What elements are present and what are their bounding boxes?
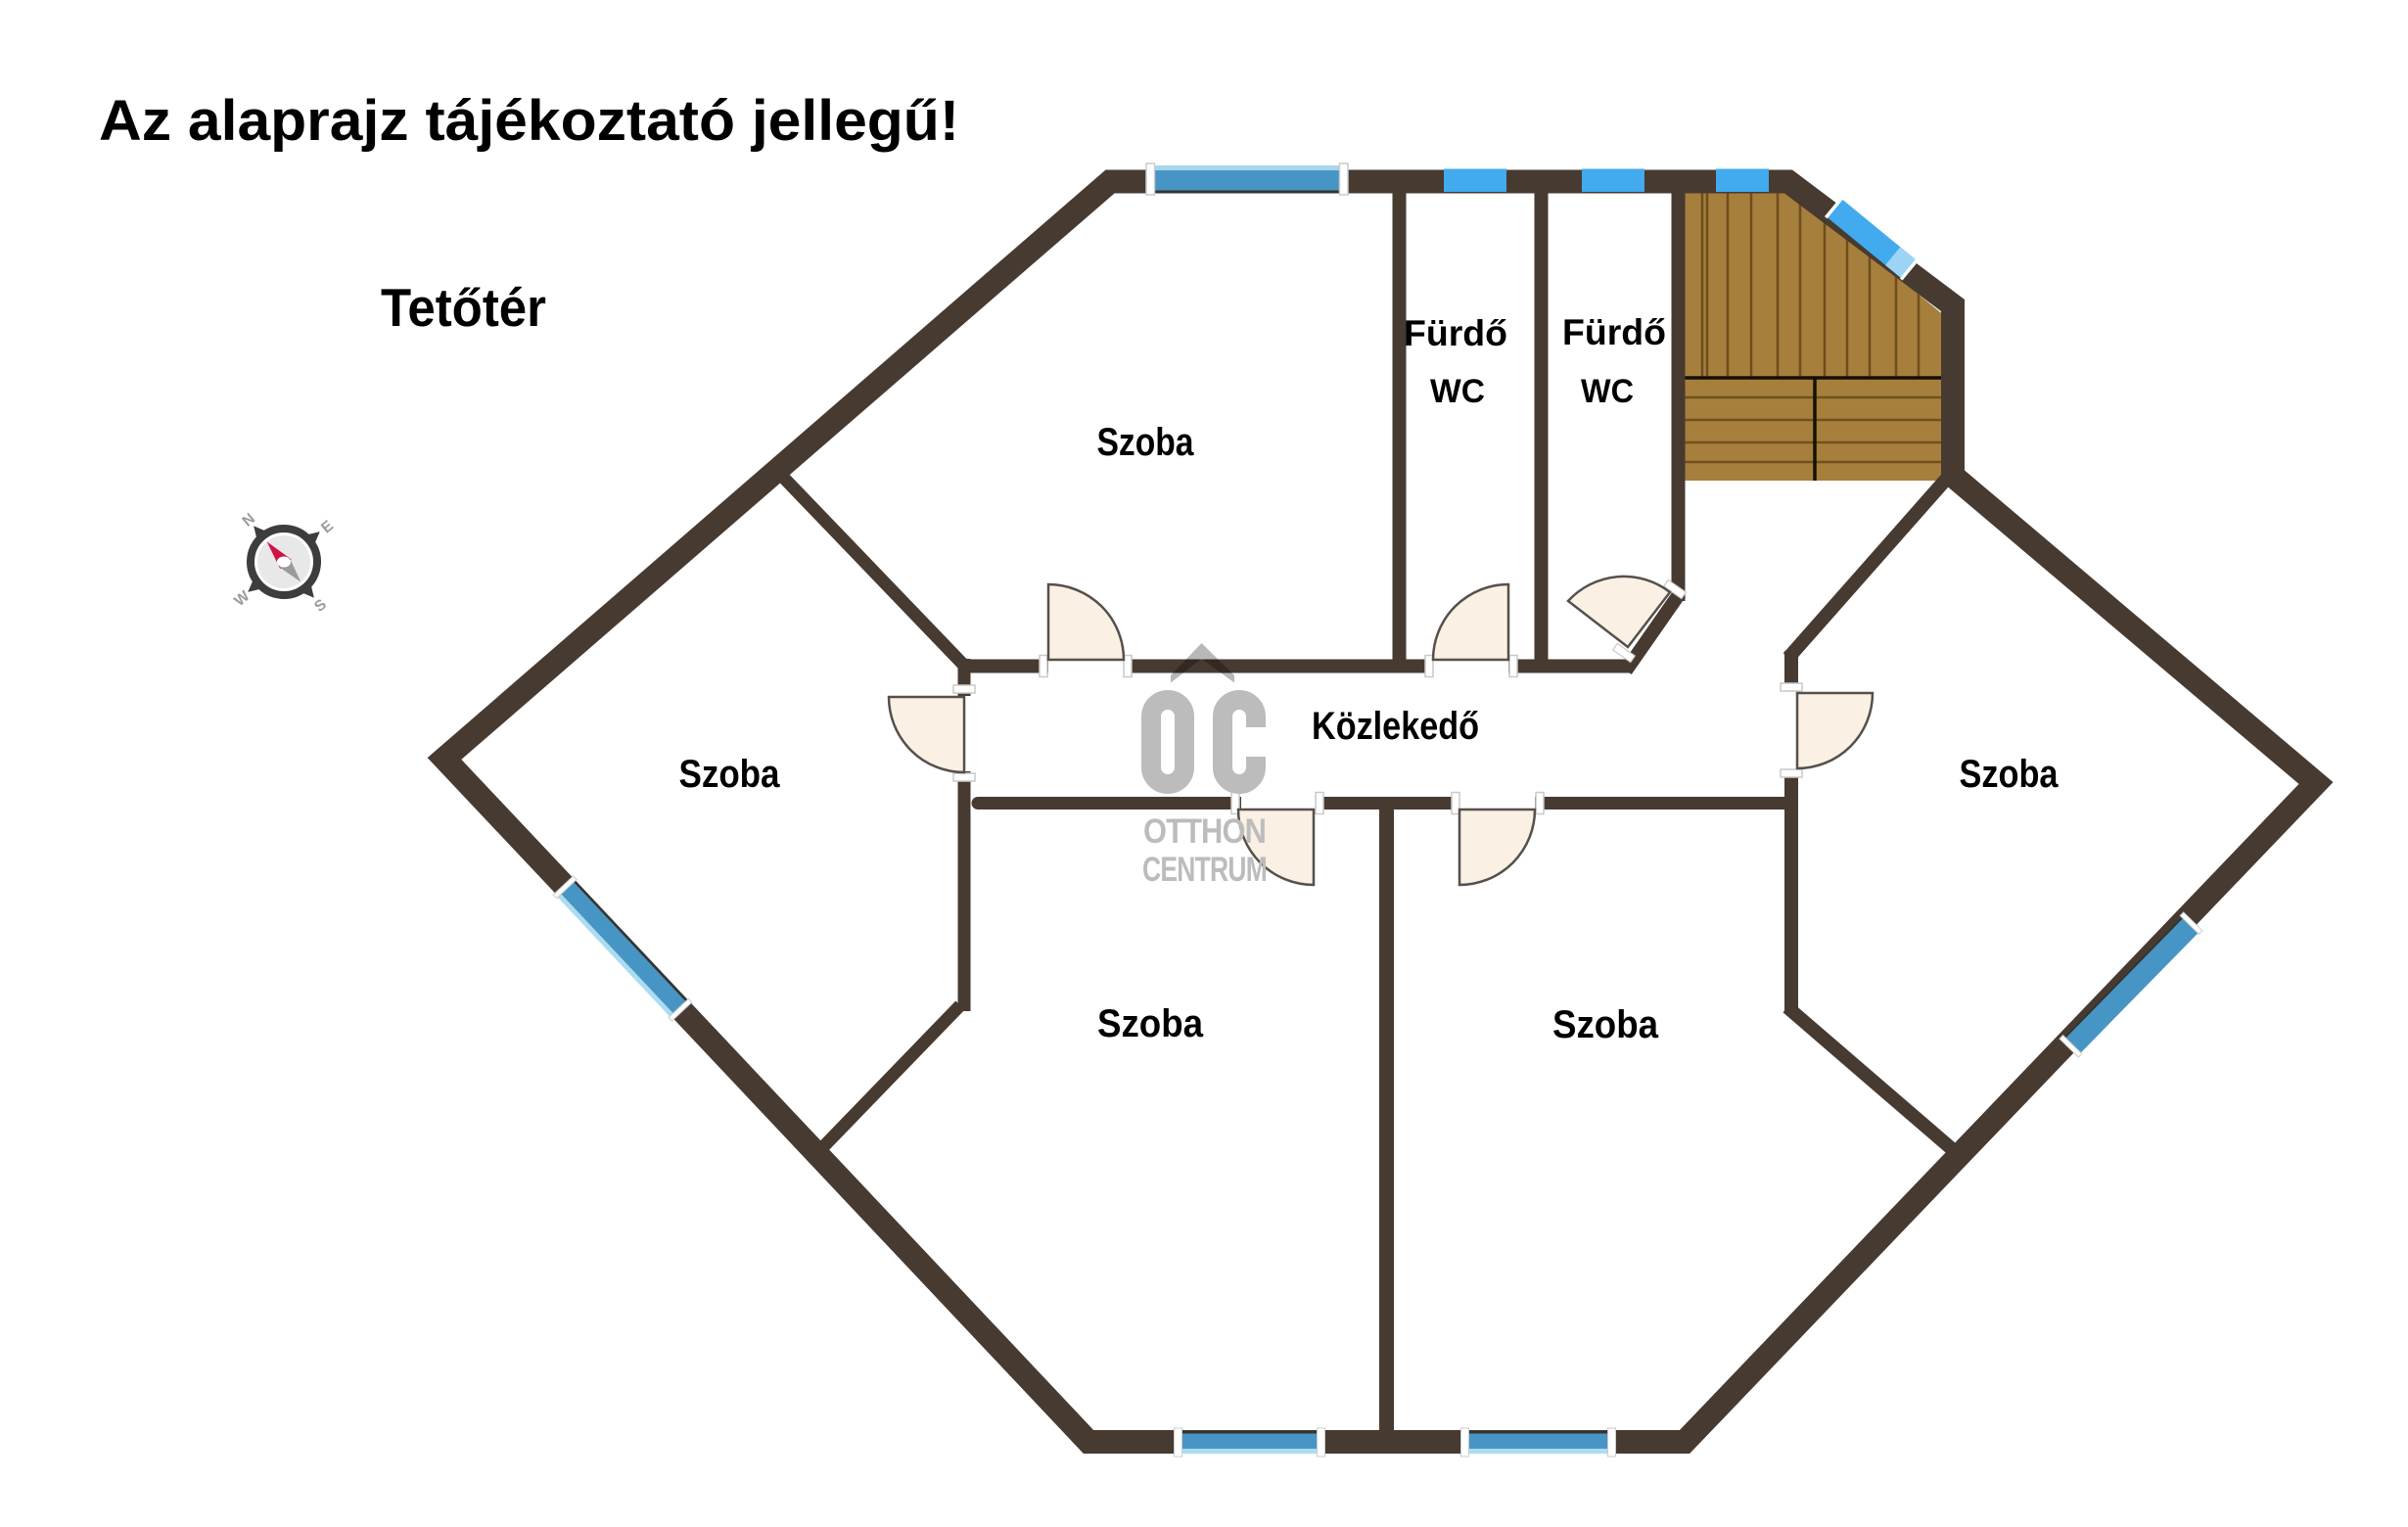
svg-text:Szoba: Szoba <box>1960 753 2060 796</box>
svg-text:WC: WC <box>1430 373 1485 410</box>
svg-text:OTTHON: OTTHON <box>1143 812 1266 851</box>
svg-text:Közlekedő: Közlekedő <box>1312 705 1479 748</box>
svg-text:Fürdő: Fürdő <box>1562 312 1666 352</box>
svg-text:Tetőtér: Tetőtér <box>381 277 546 338</box>
svg-text:Szoba: Szoba <box>1552 1003 1659 1046</box>
svg-text:Szoba: Szoba <box>1097 421 1195 464</box>
svg-text:WC: WC <box>1581 373 1634 410</box>
svg-text:CENTRUM: CENTRUM <box>1142 851 1267 889</box>
svg-text:Szoba: Szoba <box>679 753 781 796</box>
svg-text:Fürdő: Fürdő <box>1404 313 1507 353</box>
svg-text:Az alaprajz tájékoztató jelleg: Az alaprajz tájékoztató jellegű! <box>99 89 959 153</box>
svg-text:Szoba: Szoba <box>1097 1002 1204 1045</box>
